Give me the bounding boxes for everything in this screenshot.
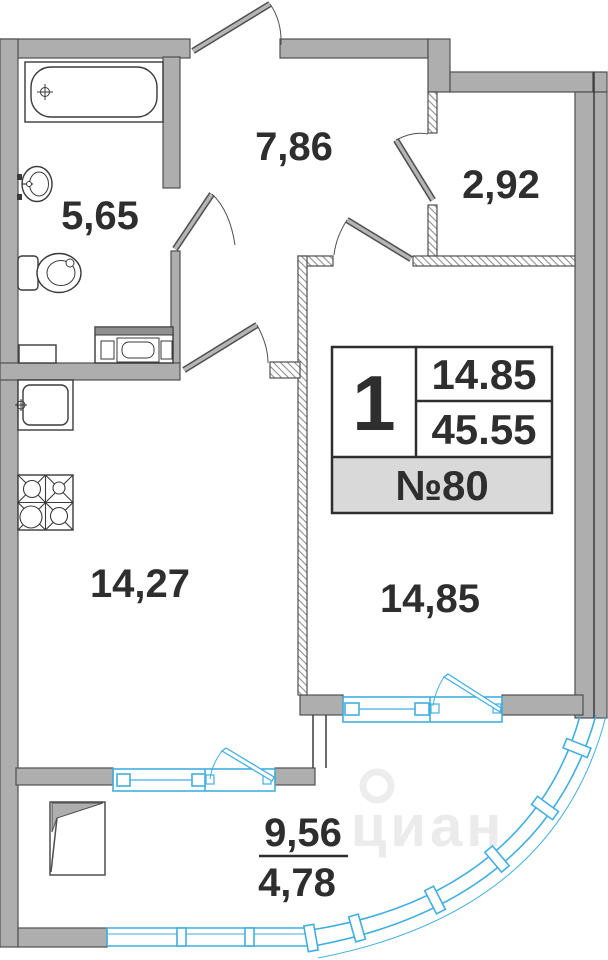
partition-kitchen-door-stub (270, 362, 300, 378)
partition-wardrobe-bottom (428, 205, 437, 256)
wall-kitchen-bottom-left (16, 768, 113, 785)
toilet-symbol (18, 254, 81, 293)
wall-right (575, 92, 607, 718)
watermark-text: циан (351, 794, 506, 859)
info-total-area: 45.55 (431, 406, 536, 453)
balcony-area-reduced: 4,78 (258, 861, 336, 905)
wall-left (0, 39, 18, 947)
apartment-info-table: 1 14.85 45.55 №80 (332, 347, 552, 513)
balcony-area-full: 9,56 (264, 811, 342, 855)
wall-top-right (450, 72, 593, 92)
room-area-label-bathroom: 5,65 (61, 194, 139, 238)
room-area-label-hallway: 7,86 (255, 125, 333, 169)
wall-right-cap (593, 72, 607, 92)
info-rooms-count: 1 (352, 359, 395, 447)
info-living-area: 14.85 (431, 351, 536, 398)
cabinet-symbol (19, 345, 56, 363)
info-apartment-number: №80 (395, 462, 489, 509)
balcony-vent-flap (50, 802, 105, 875)
wall-bathroom-right-upper (163, 57, 180, 188)
wall-room-bottom-left (300, 695, 343, 715)
wall-room-bottom-right (502, 695, 583, 715)
wall-top-left (0, 39, 190, 58)
stove-symbol (18, 475, 73, 530)
room-area-label-living-room: 14,85 (380, 577, 480, 621)
bathtub-symbol (25, 62, 163, 122)
kitchen-sink-symbol (15, 380, 73, 430)
partition-room-top-right (413, 256, 575, 266)
floor-plan-page: циан (0, 0, 608, 960)
room-area-label-wardrobe: 2,92 (462, 163, 540, 207)
wall-balcony-bottom-left (18, 928, 107, 947)
partition-wardrobe-top (428, 92, 437, 133)
floor-plan: циан (0, 0, 608, 960)
washing-machine-symbol (95, 327, 173, 363)
wall-kitchen-bottom-right (275, 768, 315, 785)
wall-bathroom-bottom (0, 363, 180, 380)
wall-top-middle (280, 39, 428, 58)
partition-kitchen-room (298, 256, 307, 695)
room-area-label-kitchen: 14,27 (90, 562, 190, 606)
wall-top-step (428, 39, 450, 92)
